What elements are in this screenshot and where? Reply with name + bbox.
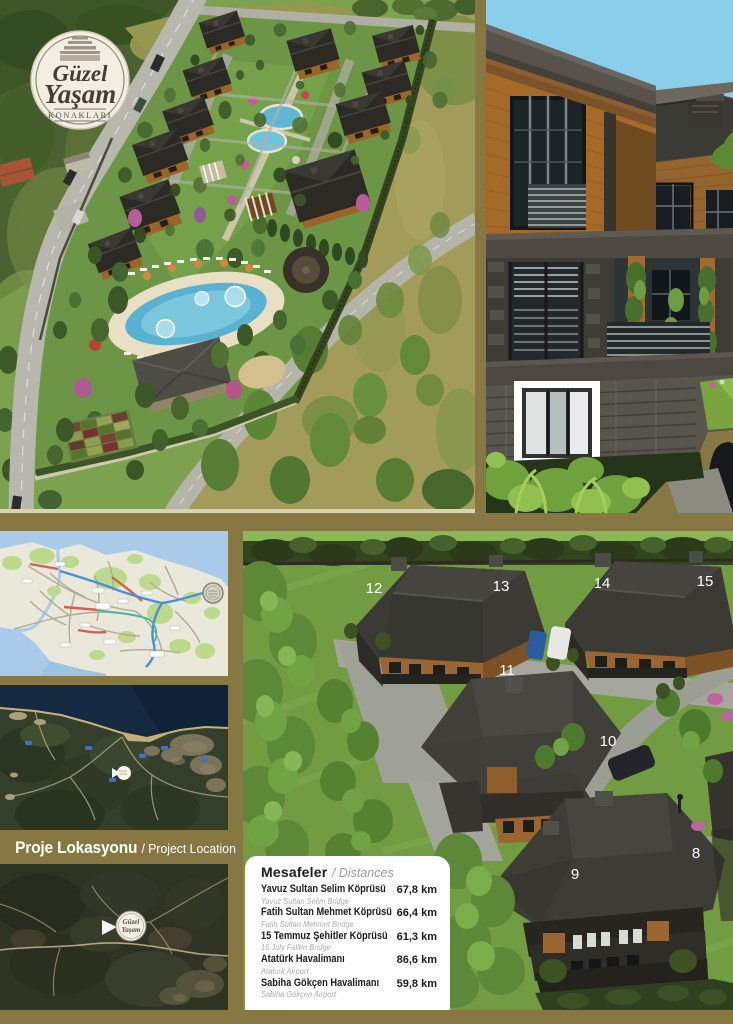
svg-text:12: 12 — [366, 580, 383, 597]
svg-text:KONAKLARI: KONAKLARI — [48, 110, 112, 120]
svg-text:Yaşam: Yaşam — [44, 79, 117, 109]
svg-text:14: 14 — [594, 575, 611, 592]
svg-text:8: 8 — [692, 845, 700, 862]
svg-text:13: 13 — [493, 578, 510, 595]
svg-text:Güzel: Güzel — [123, 918, 140, 926]
svg-text:15: 15 — [697, 573, 714, 590]
svg-text:10: 10 — [600, 733, 617, 750]
svg-text:Yaşam: Yaşam — [122, 926, 141, 934]
svg-text:9: 9 — [571, 866, 579, 883]
svg-text:11: 11 — [499, 662, 515, 679]
